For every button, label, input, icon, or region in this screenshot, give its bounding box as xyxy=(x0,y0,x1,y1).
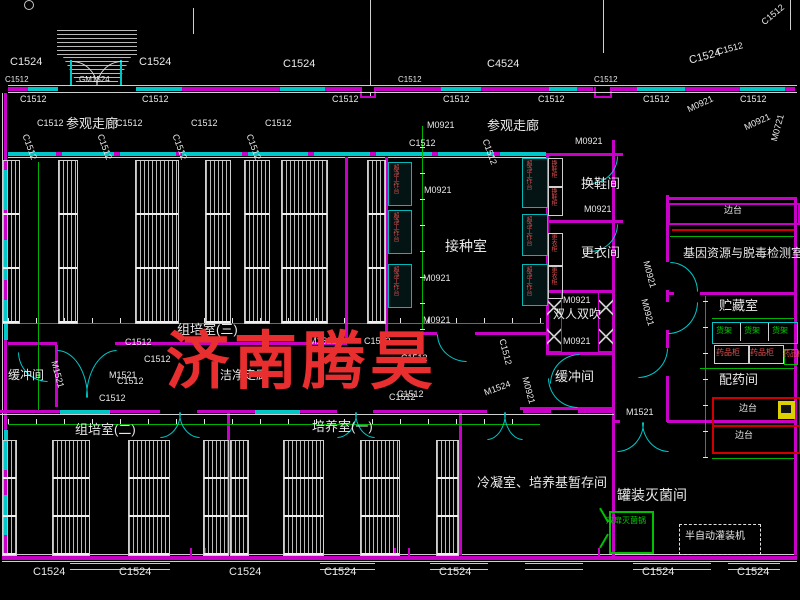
wall xyxy=(546,220,623,223)
dim-label: M0921 xyxy=(423,274,451,283)
wall xyxy=(546,352,615,355)
air-shower-column xyxy=(598,292,614,352)
clean-bench xyxy=(522,214,548,256)
dim-label: C1524 xyxy=(229,567,261,578)
culture-rack xyxy=(135,160,179,324)
dimension-ticks xyxy=(703,296,708,458)
window-sill xyxy=(525,563,583,570)
window-jamb xyxy=(494,152,500,156)
wall xyxy=(666,292,674,295)
room-label: 基因资源与脱毒检测室 xyxy=(683,247,800,259)
dim-label: M0921 xyxy=(743,112,772,132)
dim-label: M0921 xyxy=(641,260,657,289)
dim-label: C1524 xyxy=(688,48,722,67)
dim-label: M0921 xyxy=(520,376,536,405)
medicine-cabinet xyxy=(749,345,784,364)
double-door-arc xyxy=(160,412,181,438)
culture-rack xyxy=(281,160,328,324)
window-jamb xyxy=(370,152,376,156)
sterilizer xyxy=(609,511,654,554)
dim-label: C1512 xyxy=(191,119,218,128)
wall xyxy=(475,332,549,335)
double-door-arc xyxy=(642,422,669,452)
leader-line xyxy=(193,8,194,34)
double-door-arc xyxy=(504,412,523,440)
double-door-arc xyxy=(57,350,88,398)
wall-edge xyxy=(2,561,797,562)
room-label: 参观走廊 xyxy=(66,117,118,130)
wall-right xyxy=(794,197,797,555)
culture-rack xyxy=(230,440,249,556)
dim-label: C1512 xyxy=(116,119,143,128)
shoe-cabinet xyxy=(548,187,563,216)
dimension-ticks xyxy=(8,318,544,323)
window xyxy=(441,87,481,91)
double-door-arc xyxy=(617,422,644,452)
window-sill xyxy=(320,563,375,570)
window xyxy=(637,87,685,91)
dim-label: M0921 xyxy=(686,94,715,114)
dimension-line xyxy=(8,323,544,324)
dim-label: C1512 xyxy=(643,95,670,104)
dim-label: M0721 xyxy=(770,113,786,142)
window xyxy=(280,87,325,91)
culture-rack xyxy=(2,440,17,556)
medicine-cabinet xyxy=(784,349,798,365)
dimension-line xyxy=(712,318,794,319)
door-arc xyxy=(437,334,467,362)
culture-rack xyxy=(52,440,90,556)
clean-bench xyxy=(522,158,548,208)
wardrobe-cabinet xyxy=(548,233,563,266)
wall xyxy=(578,410,615,413)
door-arc xyxy=(670,262,698,292)
wall xyxy=(523,410,551,413)
dim-label: C1512 xyxy=(760,3,786,27)
air-shower-column xyxy=(546,292,562,352)
window-sill xyxy=(728,563,780,570)
sterilizer-mark xyxy=(599,534,609,549)
dim-label: C1512 xyxy=(142,95,169,104)
dim-label: M0921 xyxy=(575,137,603,146)
window xyxy=(740,87,785,91)
sink-basin xyxy=(781,405,791,413)
sterilizer-mark xyxy=(599,508,609,523)
culture-rack xyxy=(436,440,459,556)
dim-label: C1512 xyxy=(740,95,767,104)
culture-rack xyxy=(2,160,20,324)
culture-rack xyxy=(367,160,386,324)
double-door-arc xyxy=(355,412,375,438)
dim-label: C1512 xyxy=(265,119,292,128)
bench-red-line xyxy=(672,229,794,231)
dim-label: C1512 xyxy=(20,95,47,104)
window-sill xyxy=(633,563,711,570)
window-sill xyxy=(70,563,170,570)
door-arc xyxy=(668,302,698,334)
dim-label: C1512 xyxy=(398,76,422,84)
window-jamb xyxy=(432,152,438,156)
culture-rack xyxy=(203,440,229,556)
wall xyxy=(700,292,797,295)
corridor-window-band xyxy=(8,152,546,156)
dim-label: C1512 xyxy=(538,95,565,104)
room-label: 罐装灭菌间 xyxy=(617,488,687,502)
wardrobe-cabinet xyxy=(548,266,563,299)
dim-label: C1512 xyxy=(117,377,144,386)
window-jamb xyxy=(242,152,248,156)
room-label: 参观走廊 xyxy=(487,119,539,132)
leader-line xyxy=(603,0,604,53)
window xyxy=(28,87,58,91)
door-arc xyxy=(18,352,48,382)
clean-bench xyxy=(522,264,548,306)
leader-line xyxy=(790,0,791,30)
cad-floorplan-canvas: C1524C1524C1524C4524C1524C1512C1512GM152… xyxy=(0,0,800,600)
dimension-line xyxy=(8,424,540,425)
room-label: 配药间 xyxy=(719,373,758,386)
shelf-divider xyxy=(768,323,769,341)
window-jamb xyxy=(114,152,120,156)
clean-bench xyxy=(388,162,412,206)
window xyxy=(136,87,182,91)
dim-label: C4524 xyxy=(487,59,519,70)
culture-rack xyxy=(58,160,78,324)
grid-bubble xyxy=(24,0,34,10)
double-door-arc xyxy=(337,412,357,438)
dim-label: C1512 xyxy=(5,76,29,84)
window-jamb xyxy=(308,152,314,156)
culture-rack xyxy=(205,160,231,324)
dim-label: C1512 xyxy=(594,76,618,84)
side-bench xyxy=(668,203,800,225)
filling-machine xyxy=(679,524,761,555)
wall-edge xyxy=(8,92,797,93)
window xyxy=(549,87,577,91)
double-door-arc xyxy=(487,412,506,440)
dim-label: C1512 xyxy=(443,95,470,104)
room-label: 接种室 xyxy=(445,239,487,253)
dim-label: M0921 xyxy=(563,296,591,305)
dim-label: C1512 xyxy=(497,338,513,366)
leader-line xyxy=(370,0,371,97)
dim-label: M0921 xyxy=(427,121,455,130)
side-bench xyxy=(712,425,800,454)
dimension-ticks xyxy=(420,126,425,330)
wall-edge xyxy=(8,157,548,158)
shelf-unit xyxy=(712,322,798,344)
window-sill xyxy=(430,563,488,570)
dim-label: C1512 xyxy=(716,41,744,57)
dim-label: C1512 xyxy=(37,119,64,128)
window-jamb xyxy=(56,152,62,156)
wall xyxy=(459,412,462,555)
entrance-stairs xyxy=(57,30,137,57)
dimension-line xyxy=(700,368,794,369)
dimension-line xyxy=(670,236,794,237)
wall xyxy=(666,197,797,200)
clean-bench xyxy=(388,210,412,254)
wall xyxy=(345,157,348,342)
door-arc xyxy=(638,348,668,378)
culture-rack xyxy=(283,440,324,556)
door-arc xyxy=(548,378,578,408)
shelf-divider xyxy=(740,323,741,341)
room-label: 冷凝室、培养基暂存间 xyxy=(477,476,607,489)
dimension-ticks xyxy=(8,419,540,424)
watermark-text: 济南腾昊 xyxy=(166,331,438,394)
dim-label: C1512 xyxy=(332,95,359,104)
clean-bench xyxy=(388,264,412,308)
wall xyxy=(666,376,669,422)
dim-label: M1521 xyxy=(626,408,654,417)
dim-label: C1524 xyxy=(283,59,315,70)
dim-label: C1524 xyxy=(139,57,171,68)
double-door-arc xyxy=(86,350,117,398)
dim-label: M0921 xyxy=(584,205,612,214)
dim-label: M0921 xyxy=(424,186,452,195)
double-door-arc xyxy=(179,412,200,438)
dim-label: M0921 xyxy=(639,298,655,327)
dim-label: C1524 xyxy=(10,57,42,68)
wall xyxy=(373,410,487,413)
room-label: 贮藏室 xyxy=(719,299,758,312)
dim-label: M1524 xyxy=(483,380,512,398)
dimension-line xyxy=(712,458,794,459)
culture-rack xyxy=(360,440,400,556)
dim-label: M0921 xyxy=(563,337,591,346)
dim-label: C1524 xyxy=(33,567,65,578)
culture-rack xyxy=(128,440,170,556)
wall xyxy=(8,342,57,345)
medicine-cabinet xyxy=(714,345,749,364)
shoe-cabinet xyxy=(548,158,563,187)
window-jamb xyxy=(176,152,182,156)
culture-rack xyxy=(244,160,270,324)
